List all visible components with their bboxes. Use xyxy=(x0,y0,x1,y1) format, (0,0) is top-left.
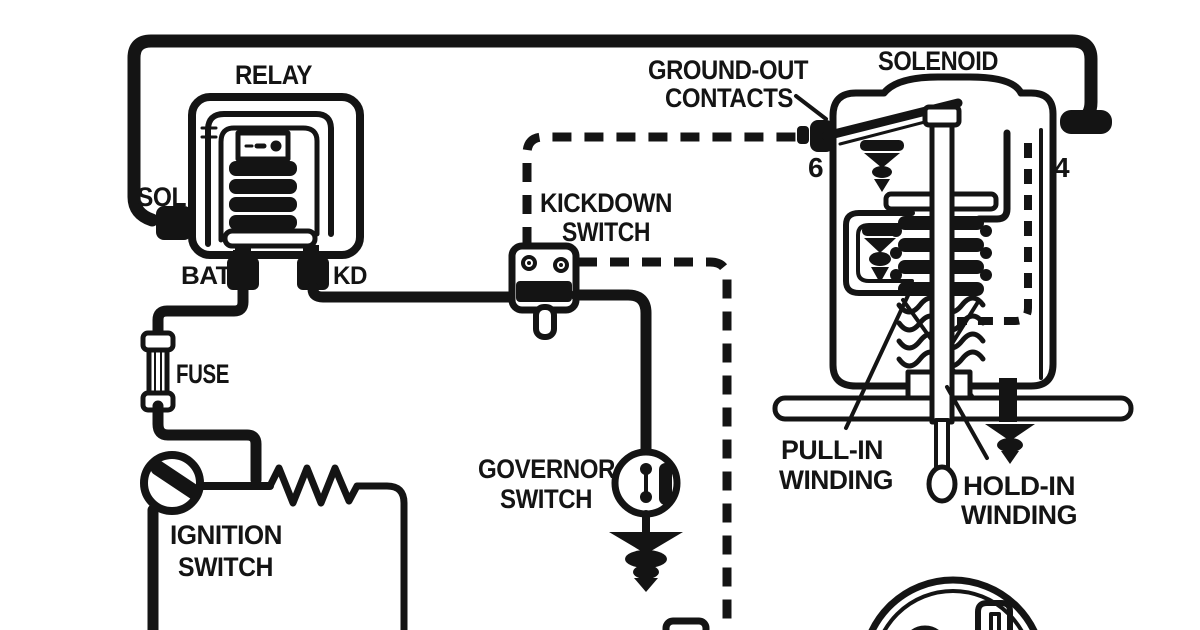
ignition-label-line2: SWITCH xyxy=(178,552,273,582)
fuse-body xyxy=(149,348,167,395)
distributor-clip xyxy=(978,603,1010,630)
governor-label-line2: SWITCH xyxy=(500,484,592,514)
ground-out-contact-tip xyxy=(797,126,809,144)
bat-label: BAT xyxy=(181,262,231,290)
kickdown-terminal-dot xyxy=(527,261,531,265)
kickdown-plunger xyxy=(536,307,554,337)
governor-switch-symbol xyxy=(609,452,683,592)
solenoid-terminal-4-stud xyxy=(1060,110,1112,134)
ground-symbol xyxy=(609,532,683,592)
kd-label: KD xyxy=(333,262,367,290)
kickdown-label-line2: SWITCH xyxy=(562,217,650,247)
relay-coil-turn xyxy=(229,179,297,194)
governor-contact-dot xyxy=(640,463,652,475)
wiring-diagram: RELAY SOL BAT KD GROUND-OUT CONTACTS SOL… xyxy=(0,0,1200,630)
governor-contact-dot xyxy=(640,491,652,503)
solenoid-plunger-tip xyxy=(929,467,955,501)
fuse-label: FUSE xyxy=(176,359,229,389)
fuse-symbol xyxy=(143,333,173,410)
kickdown-contact-bar xyxy=(516,281,572,302)
distributor-clip-slot xyxy=(991,614,999,630)
kickdown-switch-symbol xyxy=(512,246,576,337)
relay-contact-dot xyxy=(271,141,282,152)
relay-coil-turn xyxy=(229,215,297,230)
governor-contact-bar xyxy=(659,463,672,505)
ground-out-pointer-line xyxy=(796,96,826,119)
relay-coil-base xyxy=(225,231,315,246)
fuse-cap-top xyxy=(143,333,173,350)
solenoid-plunger-cap xyxy=(925,107,959,125)
terminal-4-label: 4 xyxy=(1054,152,1070,183)
kickdown-terminal-dot xyxy=(559,263,563,267)
ground-out-label-line2: CONTACTS xyxy=(665,83,793,113)
terminal-6-label: 6 xyxy=(808,152,823,183)
relay-label: RELAY xyxy=(235,60,312,90)
bat-to-fuse-wire xyxy=(158,288,243,334)
relay-coil-turn xyxy=(229,161,297,176)
sol-label: SOL xyxy=(137,182,186,212)
distributor-partial xyxy=(863,580,1043,630)
governor-label-line1: GOVERNOR xyxy=(478,454,615,484)
pull-in-label-line1: PULL-IN xyxy=(781,435,883,465)
hold-in-label-line1: HOLD-IN xyxy=(963,471,1075,501)
pull-in-label-line2: WINDING xyxy=(779,465,893,495)
solenoid-plunger-rod xyxy=(936,420,948,470)
resistor-and-drop-wire xyxy=(270,468,404,630)
bottom-connector-partial xyxy=(666,621,706,630)
kickdown-label-line1: KICKDOWN xyxy=(540,188,672,218)
solenoid-label: SOLENOID xyxy=(878,46,998,76)
relay-coil-turn xyxy=(229,197,297,212)
solenoid-plunger-shaft xyxy=(932,120,952,422)
ignition-label-line1: IGNITION xyxy=(170,520,282,550)
ground-out-label-line1: GROUND-OUT xyxy=(648,55,809,85)
hold-in-label-line2: WINDING xyxy=(961,500,1077,530)
kickdown-to-governor-wire xyxy=(576,295,646,452)
ground-symbol xyxy=(860,140,904,192)
diagram-canvas: RELAY SOL BAT KD GROUND-OUT CONTACTS SOL… xyxy=(0,0,1200,630)
